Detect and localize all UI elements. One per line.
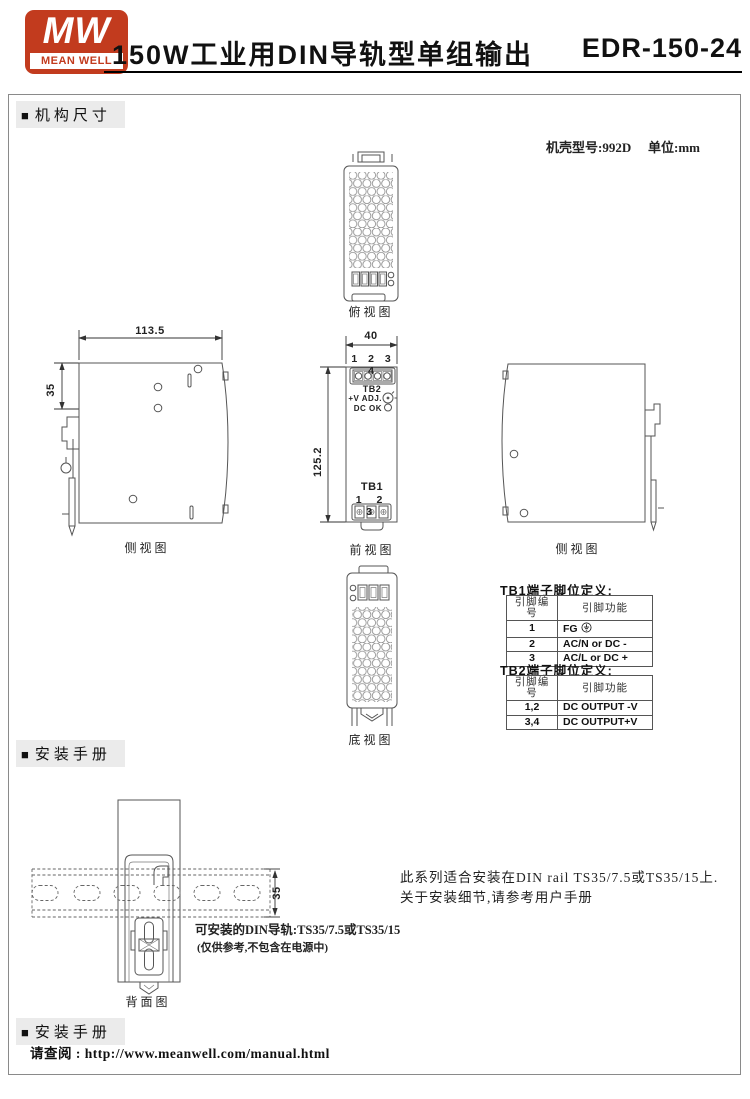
section-install: ■安装手册	[16, 740, 125, 767]
table-row: 3,4 DC OUTPUT+V	[507, 715, 653, 730]
tb1-table: 引脚编号 引脚功能 1 FG 2 AC/N or DC - 3 AC/L or …	[506, 595, 653, 667]
install-note-line1: 此系列适合安装在DIN rail TS35/7.5或TS35/15上.	[400, 866, 718, 886]
dim-rail-offset-label: 35	[45, 381, 59, 399]
vent-pattern	[352, 607, 392, 702]
tb2-col-func: 引脚功能	[558, 676, 653, 701]
install-note-line2: 关于安装细节,请参考用户手册	[400, 886, 593, 906]
rail-hook	[154, 866, 168, 885]
mounting-legs	[352, 708, 392, 726]
tb1-pin-numbers: 1 2 3	[346, 494, 398, 518]
din-clip	[645, 404, 664, 530]
table-row: 1,2 DC OUTPUT -V	[507, 701, 653, 716]
side-view-left-label: 侧视图	[107, 539, 187, 556]
side-body	[79, 363, 228, 523]
side-body	[502, 364, 645, 522]
tb1-label: TB1	[346, 481, 398, 493]
dim-front-width-label: 40	[341, 330, 401, 342]
vent-pattern	[349, 172, 393, 268]
model-number: EDR-150-24	[582, 33, 742, 64]
rear-view-label: 背面图	[108, 993, 188, 1010]
din-rail-subnote: (仅供参考,不包含在电源中)	[197, 939, 328, 955]
dc-ok-label: DC OK	[342, 404, 382, 413]
tb1-row1-pin: 1	[507, 621, 558, 638]
section-bullet-icon: ■	[21, 1025, 29, 1040]
tb2-label: TB2	[346, 384, 398, 394]
din-clip	[131, 918, 167, 994]
tb2-table: 引脚编号 引脚功能 1,2 DC OUTPUT -V 3,4 DC OUTPUT…	[506, 675, 653, 730]
din-rail	[32, 869, 270, 917]
top-view-label: 俯视图	[331, 303, 411, 320]
top-view-diagram	[334, 147, 410, 307]
front-view-label: 前视图	[332, 541, 412, 558]
side-view-right-label: 侧视图	[538, 540, 618, 557]
section-install-label: 安装手册	[35, 747, 111, 763]
dim-width-label: 113.5	[110, 325, 190, 337]
table-header-row: 引脚编号 引脚功能	[507, 676, 653, 701]
rear-view-diagram	[28, 788, 300, 996]
din-clip	[61, 417, 79, 535]
unit-note: 单位:mm	[648, 137, 700, 156]
table-row: 2 AC/N or DC -	[507, 637, 653, 652]
table-header-row: 引脚编号 引脚功能	[507, 596, 653, 621]
section-bullet-icon: ■	[21, 747, 29, 762]
tb1-row1-func: FG	[558, 621, 653, 638]
title-underline	[104, 71, 742, 73]
tb2-row1-pin: 1,2	[507, 701, 558, 716]
tb1-col-func: 引脚功能	[558, 596, 653, 621]
tb2-row2-pin: 3,4	[507, 715, 558, 730]
rail-dim-label: 35	[271, 882, 285, 904]
section-mechanical: ■机构尺寸	[16, 101, 125, 128]
vadj-label: +V ADJ.	[342, 394, 382, 403]
din-rail-note: 可安装的DIN导轨:TS35/7.5或TS35/15	[195, 919, 400, 938]
tb1-row2-pin: 2	[507, 637, 558, 652]
case-number-note: 机壳型号:992D	[546, 137, 631, 156]
section-mechanical-label: 机构尺寸	[35, 108, 111, 124]
logo-brand-text: MEAN WELL	[30, 53, 123, 69]
ground-icon	[581, 622, 592, 633]
tb1-col-pin: 引脚编号	[507, 596, 558, 621]
tb1-row2-func: AC/N or DC -	[558, 637, 653, 652]
bottom-view-label: 底视图	[331, 731, 411, 748]
front-bottom-tab	[361, 522, 383, 530]
page-title: 150W工业用DIN导轨型单组输出	[112, 33, 533, 72]
side-view-right-diagram	[492, 360, 672, 532]
section-bullet-icon: ■	[21, 108, 29, 123]
tb2-col-pin: 引脚编号	[507, 676, 558, 701]
manual-url-text: 请查阅 : http://www.meanwell.com/manual.htm…	[30, 1042, 330, 1062]
tb2-pin-numbers: 1 2 3 4	[347, 353, 399, 377]
section-manual-label: 安装手册	[35, 1025, 111, 1041]
section-manual: ■安装手册	[16, 1018, 125, 1045]
bottom-view-diagram	[334, 562, 410, 734]
tb2-row1-func: DC OUTPUT -V	[558, 701, 653, 716]
side-view-left-diagram	[40, 322, 240, 540]
table-row: 1 FG	[507, 621, 653, 638]
dim-height-label: 125.2	[312, 440, 326, 484]
top-clip	[353, 152, 392, 162]
tb2-row2-func: DC OUTPUT+V	[558, 715, 653, 730]
